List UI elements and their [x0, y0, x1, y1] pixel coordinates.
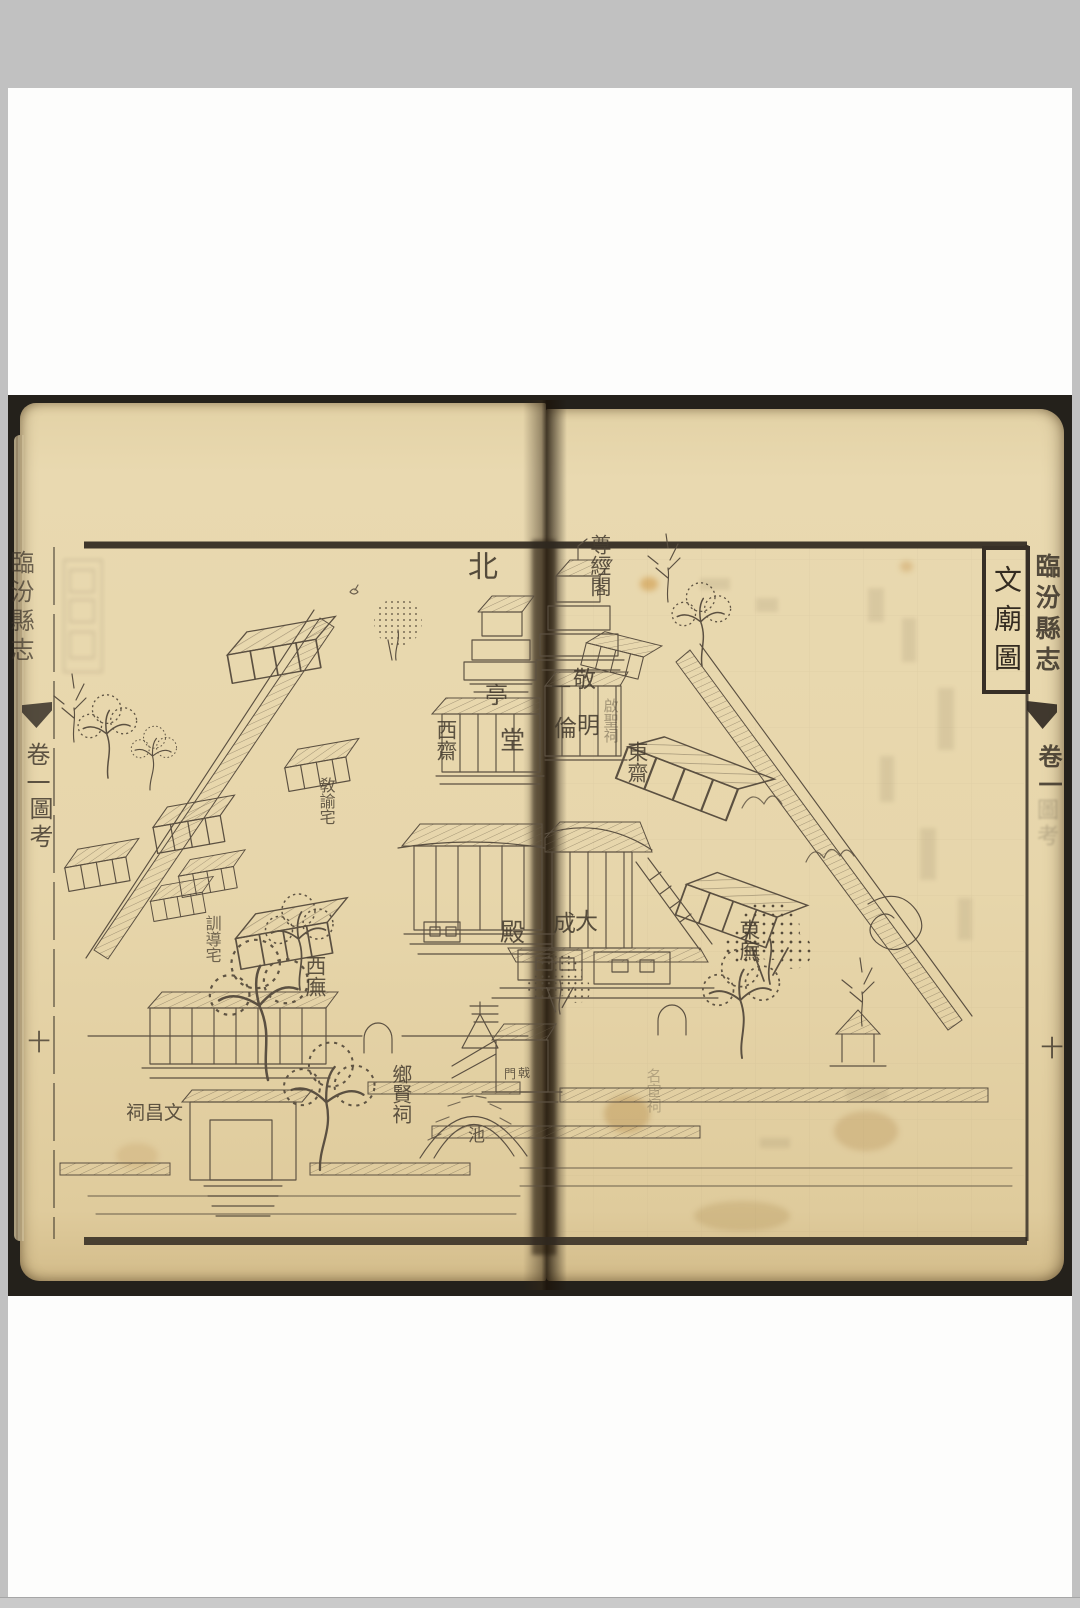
- page-number-left: 十: [24, 1030, 47, 1053]
- scanned-book-page: 臨汾縣志 卷一 圖考 十 文廟圖 臨汾縣志 卷一 圖考 十 北尊經閣敬一亭明倫堂…: [0, 0, 1080, 1608]
- spine-title-right: 臨汾縣志: [1034, 553, 1059, 677]
- bleedthrough-title-box: [64, 560, 102, 672]
- volume-label-right: 卷一: [1036, 744, 1060, 800]
- left-page-art: [54, 585, 562, 1216]
- section-label-right-ghost: 圖考: [1034, 798, 1056, 850]
- section-label-left: 圖考: [27, 796, 51, 852]
- woodcut-drawing: [0, 0, 1080, 1608]
- page-number-right: 十: [1037, 1036, 1060, 1059]
- map-title-box: 文廟圖: [982, 546, 1030, 694]
- spine-title-left: 臨汾縣志: [8, 550, 32, 666]
- volume-label-left: 卷一: [24, 742, 48, 798]
- bottom-strip: [0, 1597, 1080, 1608]
